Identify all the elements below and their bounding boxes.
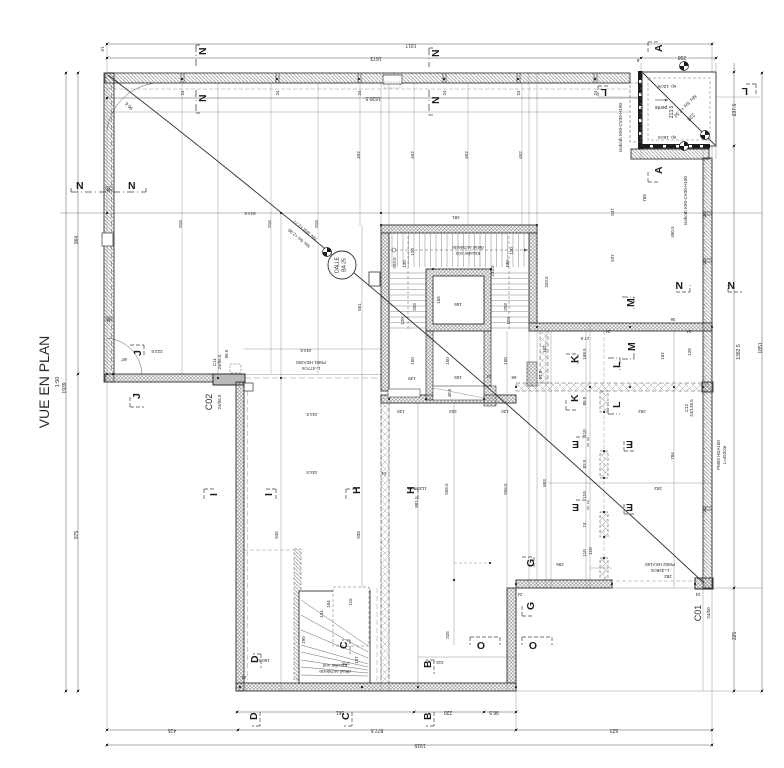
- svg-text:détail architecte: détail architecte: [319, 669, 351, 674]
- svg-text:120: 120: [400, 317, 405, 325]
- svg-text:24: 24: [593, 90, 598, 96]
- svg-text:556.5: 556.5: [503, 483, 508, 495]
- svg-text:101: 101: [542, 345, 547, 353]
- svg-text:252: 252: [654, 486, 662, 491]
- svg-text:1673: 1673: [370, 55, 381, 61]
- svg-text:537: 537: [610, 208, 615, 216]
- svg-text:PM03 HEA160: PM03 HEA160: [716, 440, 721, 470]
- svg-text:139: 139: [408, 376, 416, 381]
- svg-text:623: 623: [610, 727, 619, 733]
- svg-text:603: 603: [542, 479, 547, 487]
- svg-text:L: L: [611, 401, 623, 408]
- svg-text:PM02 HEA160: PM02 HEA160: [645, 562, 675, 567]
- svg-text:24: 24: [702, 507, 707, 513]
- svg-text:24: 24: [106, 317, 111, 323]
- svg-text:24: 24: [106, 187, 111, 193]
- svg-text:pente: pente: [655, 104, 668, 110]
- svg-text:N: N: [430, 49, 442, 57]
- svg-text:68: 68: [511, 375, 517, 380]
- svg-text:H: H: [351, 486, 363, 494]
- svg-text:24: 24: [517, 592, 523, 597]
- svg-text:17.5: 17.5: [580, 336, 589, 341]
- svg-text:24: 24: [516, 90, 521, 96]
- svg-text:452: 452: [410, 151, 415, 159]
- svg-text:E: E: [572, 438, 579, 450]
- svg-text:415: 415: [436, 660, 444, 665]
- svg-text:203: 203: [412, 303, 417, 311]
- svg-text:PM01 HEA300: PM01 HEA300: [296, 360, 326, 365]
- svg-text:104: 104: [326, 600, 331, 608]
- svg-text:168.5: 168.5: [582, 348, 587, 360]
- svg-text:96.5: 96.5: [224, 349, 229, 358]
- svg-text:333.5: 333.5: [544, 276, 549, 288]
- svg-text:A: A: [653, 44, 665, 52]
- svg-text:L=452cm: L=452cm: [722, 445, 727, 464]
- svg-text:C01: C01: [693, 605, 703, 622]
- svg-text:O: O: [529, 639, 537, 651]
- svg-text:N: N: [727, 279, 735, 291]
- svg-text:150: 150: [410, 357, 415, 365]
- svg-text:E: E: [626, 501, 633, 513]
- svg-text:83.5: 83.5: [582, 459, 587, 468]
- svg-text:24: 24: [180, 90, 185, 96]
- svg-text:D: D: [248, 712, 260, 720]
- svg-text:24: 24: [275, 90, 280, 96]
- svg-text:B: B: [422, 712, 434, 720]
- svg-text:150: 150: [503, 357, 508, 365]
- svg-text:120: 120: [410, 248, 415, 256]
- svg-text:162: 162: [660, 352, 665, 360]
- svg-text:K: K: [569, 394, 581, 402]
- svg-text:110: 110: [582, 429, 587, 437]
- svg-text:24: 24: [702, 259, 707, 265]
- svg-text:24: 24: [241, 675, 247, 680]
- svg-text:537: 537: [610, 254, 615, 262]
- svg-text:L: L: [741, 85, 748, 97]
- svg-text:203: 203: [503, 303, 508, 311]
- svg-text:130: 130: [505, 260, 510, 268]
- svg-text:877.5: 877.5: [371, 727, 384, 733]
- svg-text:150: 150: [445, 357, 450, 365]
- svg-text:278: 278: [342, 661, 350, 666]
- svg-text:L: L: [600, 86, 607, 98]
- svg-text:Escalier voir: Escalier voir: [455, 251, 480, 256]
- svg-text:I: I: [208, 493, 220, 496]
- svg-text:85.5: 85.5: [582, 396, 587, 405]
- svg-text:916: 916: [314, 220, 319, 228]
- svg-text:916: 916: [178, 220, 183, 228]
- svg-text:E: E: [572, 501, 579, 513]
- svg-text:1915: 1915: [414, 742, 425, 748]
- svg-text:282: 282: [664, 574, 672, 579]
- svg-text:165: 165: [454, 302, 462, 307]
- svg-text:24/96.5: 24/96.5: [217, 394, 222, 410]
- svg-text:L: L: [611, 361, 623, 368]
- svg-text:916: 916: [267, 220, 272, 228]
- svg-text:C: C: [340, 712, 352, 720]
- svg-text:945: 945: [274, 531, 279, 539]
- svg-text:VUE EN PLAN: VUE EN PLAN: [36, 336, 52, 429]
- svg-text:1382.5: 1382.5: [736, 344, 742, 360]
- svg-text:139: 139: [397, 409, 405, 414]
- svg-text:130: 130: [402, 260, 407, 268]
- svg-text:223.5: 223.5: [151, 349, 163, 354]
- svg-text:160.5: 160.5: [258, 658, 270, 663]
- svg-text:325: 325: [445, 631, 450, 639]
- svg-text:DALLE: DALLE: [335, 256, 341, 273]
- svg-text:1851: 1851: [758, 342, 764, 353]
- svg-text:1917: 1917: [405, 42, 416, 48]
- svg-text:110: 110: [588, 547, 593, 555]
- svg-text:24: 24: [695, 592, 701, 597]
- svg-text:N: N: [675, 279, 683, 291]
- svg-text:C02: C02: [204, 394, 214, 411]
- svg-text:134: 134: [319, 610, 324, 618]
- svg-text:B: B: [422, 660, 434, 668]
- svg-text:298: 298: [678, 54, 687, 60]
- svg-text:844.5: 844.5: [244, 211, 256, 216]
- svg-text:24/50: 24/50: [706, 607, 711, 619]
- svg-text:24: 24: [442, 90, 447, 96]
- svg-text:120: 120: [506, 317, 511, 325]
- svg-text:220: 220: [444, 709, 453, 715]
- svg-text:24/96.5: 24/96.5: [217, 354, 222, 370]
- svg-text:1630.5: 1630.5: [365, 95, 381, 101]
- svg-text:48°: 48°: [120, 357, 127, 362]
- svg-text:1120.5: 1120.5: [413, 486, 427, 491]
- svg-text:L=477cm: L=477cm: [301, 366, 320, 371]
- svg-text:938: 938: [356, 531, 361, 539]
- svg-text:128: 128: [687, 348, 692, 356]
- svg-text:N: N: [197, 94, 209, 102]
- svg-text:296: 296: [556, 562, 564, 567]
- svg-text:203.5: 203.5: [392, 257, 397, 269]
- svg-text:452: 452: [464, 151, 469, 159]
- svg-text:74: 74: [582, 522, 587, 528]
- svg-text:K: K: [569, 355, 581, 363]
- svg-text:964: 964: [74, 236, 80, 245]
- svg-text:434.5: 434.5: [300, 348, 312, 353]
- svg-text:57.5: 57.5: [538, 370, 543, 379]
- svg-text:556.5: 556.5: [444, 483, 449, 495]
- svg-text:252: 252: [638, 409, 646, 414]
- svg-text:Isokorb K50-CV30-H180: Isokorb K50-CV30-H180: [683, 175, 688, 225]
- svg-text:24/138.5: 24/138.5: [689, 399, 694, 417]
- svg-text:36: 36: [670, 317, 676, 322]
- svg-text:165: 165: [454, 375, 462, 380]
- svg-text:234.5: 234.5: [490, 265, 495, 277]
- svg-text:110: 110: [582, 491, 587, 499]
- svg-text:10: 10: [100, 46, 105, 52]
- svg-text:237.5: 237.5: [732, 104, 738, 117]
- svg-text:768: 768: [642, 194, 647, 202]
- svg-text:551: 551: [357, 303, 362, 311]
- svg-text:L=328cm: L=328cm: [650, 568, 669, 573]
- svg-text:N: N: [430, 96, 442, 104]
- svg-text:434.5: 434.5: [306, 470, 318, 475]
- svg-text:G: G: [525, 559, 537, 567]
- svg-text:I: I: [263, 493, 275, 496]
- svg-text:24: 24: [702, 212, 707, 218]
- svg-text:G: G: [525, 602, 537, 610]
- svg-text:BA 25: BA 25: [342, 258, 348, 272]
- svg-text:480.5: 480.5: [670, 226, 675, 238]
- svg-text:44: 44: [486, 374, 492, 379]
- svg-text:137: 137: [354, 656, 359, 664]
- svg-text:1:50: 1:50: [55, 377, 61, 388]
- svg-text:784: 784: [670, 452, 675, 460]
- svg-text:M: M: [626, 342, 638, 351]
- svg-text:975: 975: [74, 531, 80, 540]
- svg-text:325: 325: [732, 632, 738, 641]
- svg-text:481: 481: [452, 215, 460, 220]
- svg-text:24: 24: [686, 329, 692, 334]
- svg-text:203: 203: [449, 409, 457, 414]
- svg-text:ep. 12cm: ep. 12cm: [657, 84, 676, 89]
- svg-text:N: N: [76, 180, 84, 192]
- svg-text:C: C: [338, 641, 350, 649]
- svg-text:110: 110: [582, 549, 587, 557]
- svg-text:M: M: [625, 298, 637, 307]
- svg-text:115: 115: [348, 598, 353, 606]
- svg-text:détail architecte: détail architecte: [452, 245, 484, 250]
- svg-text:452: 452: [356, 151, 361, 159]
- svg-text:24: 24: [605, 329, 611, 334]
- svg-text:96.5: 96.5: [489, 709, 499, 715]
- svg-text:881.5: 881.5: [414, 496, 419, 508]
- svg-text:120: 120: [501, 409, 509, 414]
- svg-text:120: 120: [509, 247, 514, 255]
- svg-text:24: 24: [357, 90, 362, 96]
- svg-text:N: N: [197, 47, 209, 55]
- svg-text:O: O: [477, 639, 485, 651]
- svg-text:48.5: 48.5: [447, 388, 452, 397]
- svg-text:434.5: 434.5: [306, 412, 318, 417]
- svg-text:ep. 16cm: ep. 16cm: [657, 135, 676, 140]
- svg-text:A: A: [653, 166, 665, 174]
- svg-text:452: 452: [518, 151, 523, 159]
- svg-text:1939: 1939: [62, 382, 68, 393]
- svg-text:290: 290: [301, 636, 306, 644]
- svg-text:E: E: [626, 438, 633, 450]
- svg-text:Isokorb K50-CV30-H180: Isokorb K50-CV30-H180: [618, 102, 623, 152]
- svg-text:J: J: [132, 350, 144, 356]
- svg-text:N: N: [128, 180, 136, 192]
- svg-text:415: 415: [168, 727, 177, 733]
- svg-text:24: 24: [381, 471, 387, 476]
- svg-text:J: J: [131, 393, 143, 399]
- svg-text:165: 165: [436, 296, 441, 304]
